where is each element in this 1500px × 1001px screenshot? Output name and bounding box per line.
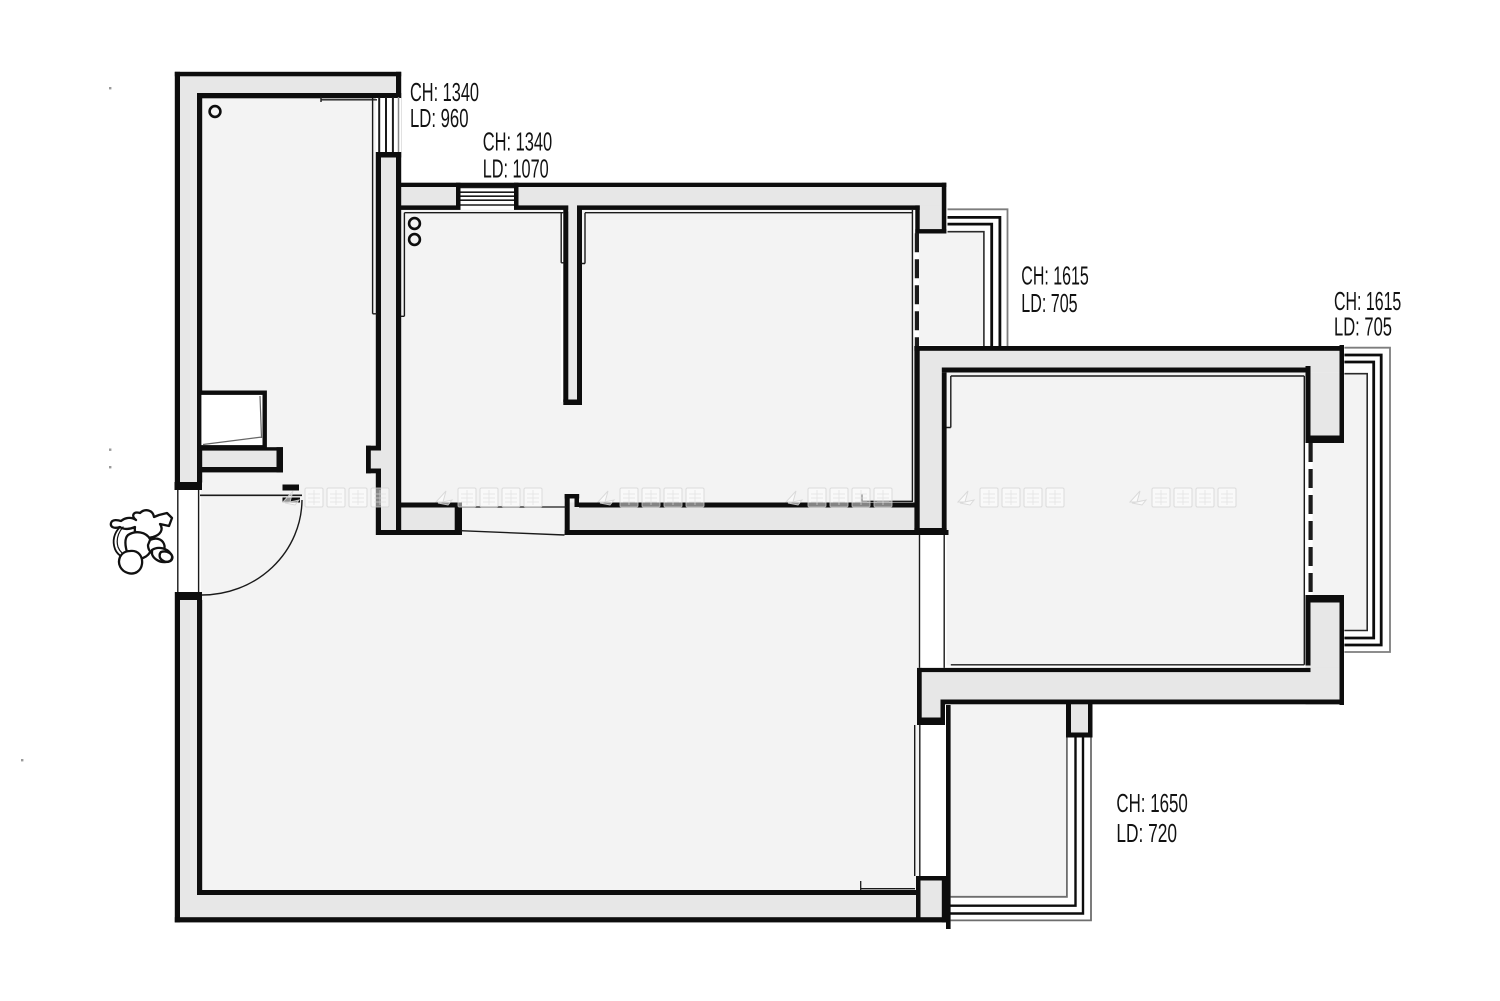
svg-text:CH: 1615: CH: 1615 bbox=[1021, 263, 1089, 291]
svg-text:LD: 1070: LD: 1070 bbox=[483, 155, 549, 183]
svg-text:LD: 705: LD: 705 bbox=[1021, 290, 1077, 318]
svg-text:CH: 1340: CH: 1340 bbox=[483, 128, 553, 156]
svg-text:LD: 960: LD: 960 bbox=[410, 105, 469, 133]
svg-text:CH: 1615: CH: 1615 bbox=[1334, 288, 1401, 316]
svg-text:LD: 720: LD: 720 bbox=[1116, 820, 1177, 848]
svg-text:CH: 1650: CH: 1650 bbox=[1116, 790, 1187, 818]
svg-text:CH: 1340: CH: 1340 bbox=[410, 79, 479, 107]
svg-text:LD: 705: LD: 705 bbox=[1334, 314, 1392, 342]
